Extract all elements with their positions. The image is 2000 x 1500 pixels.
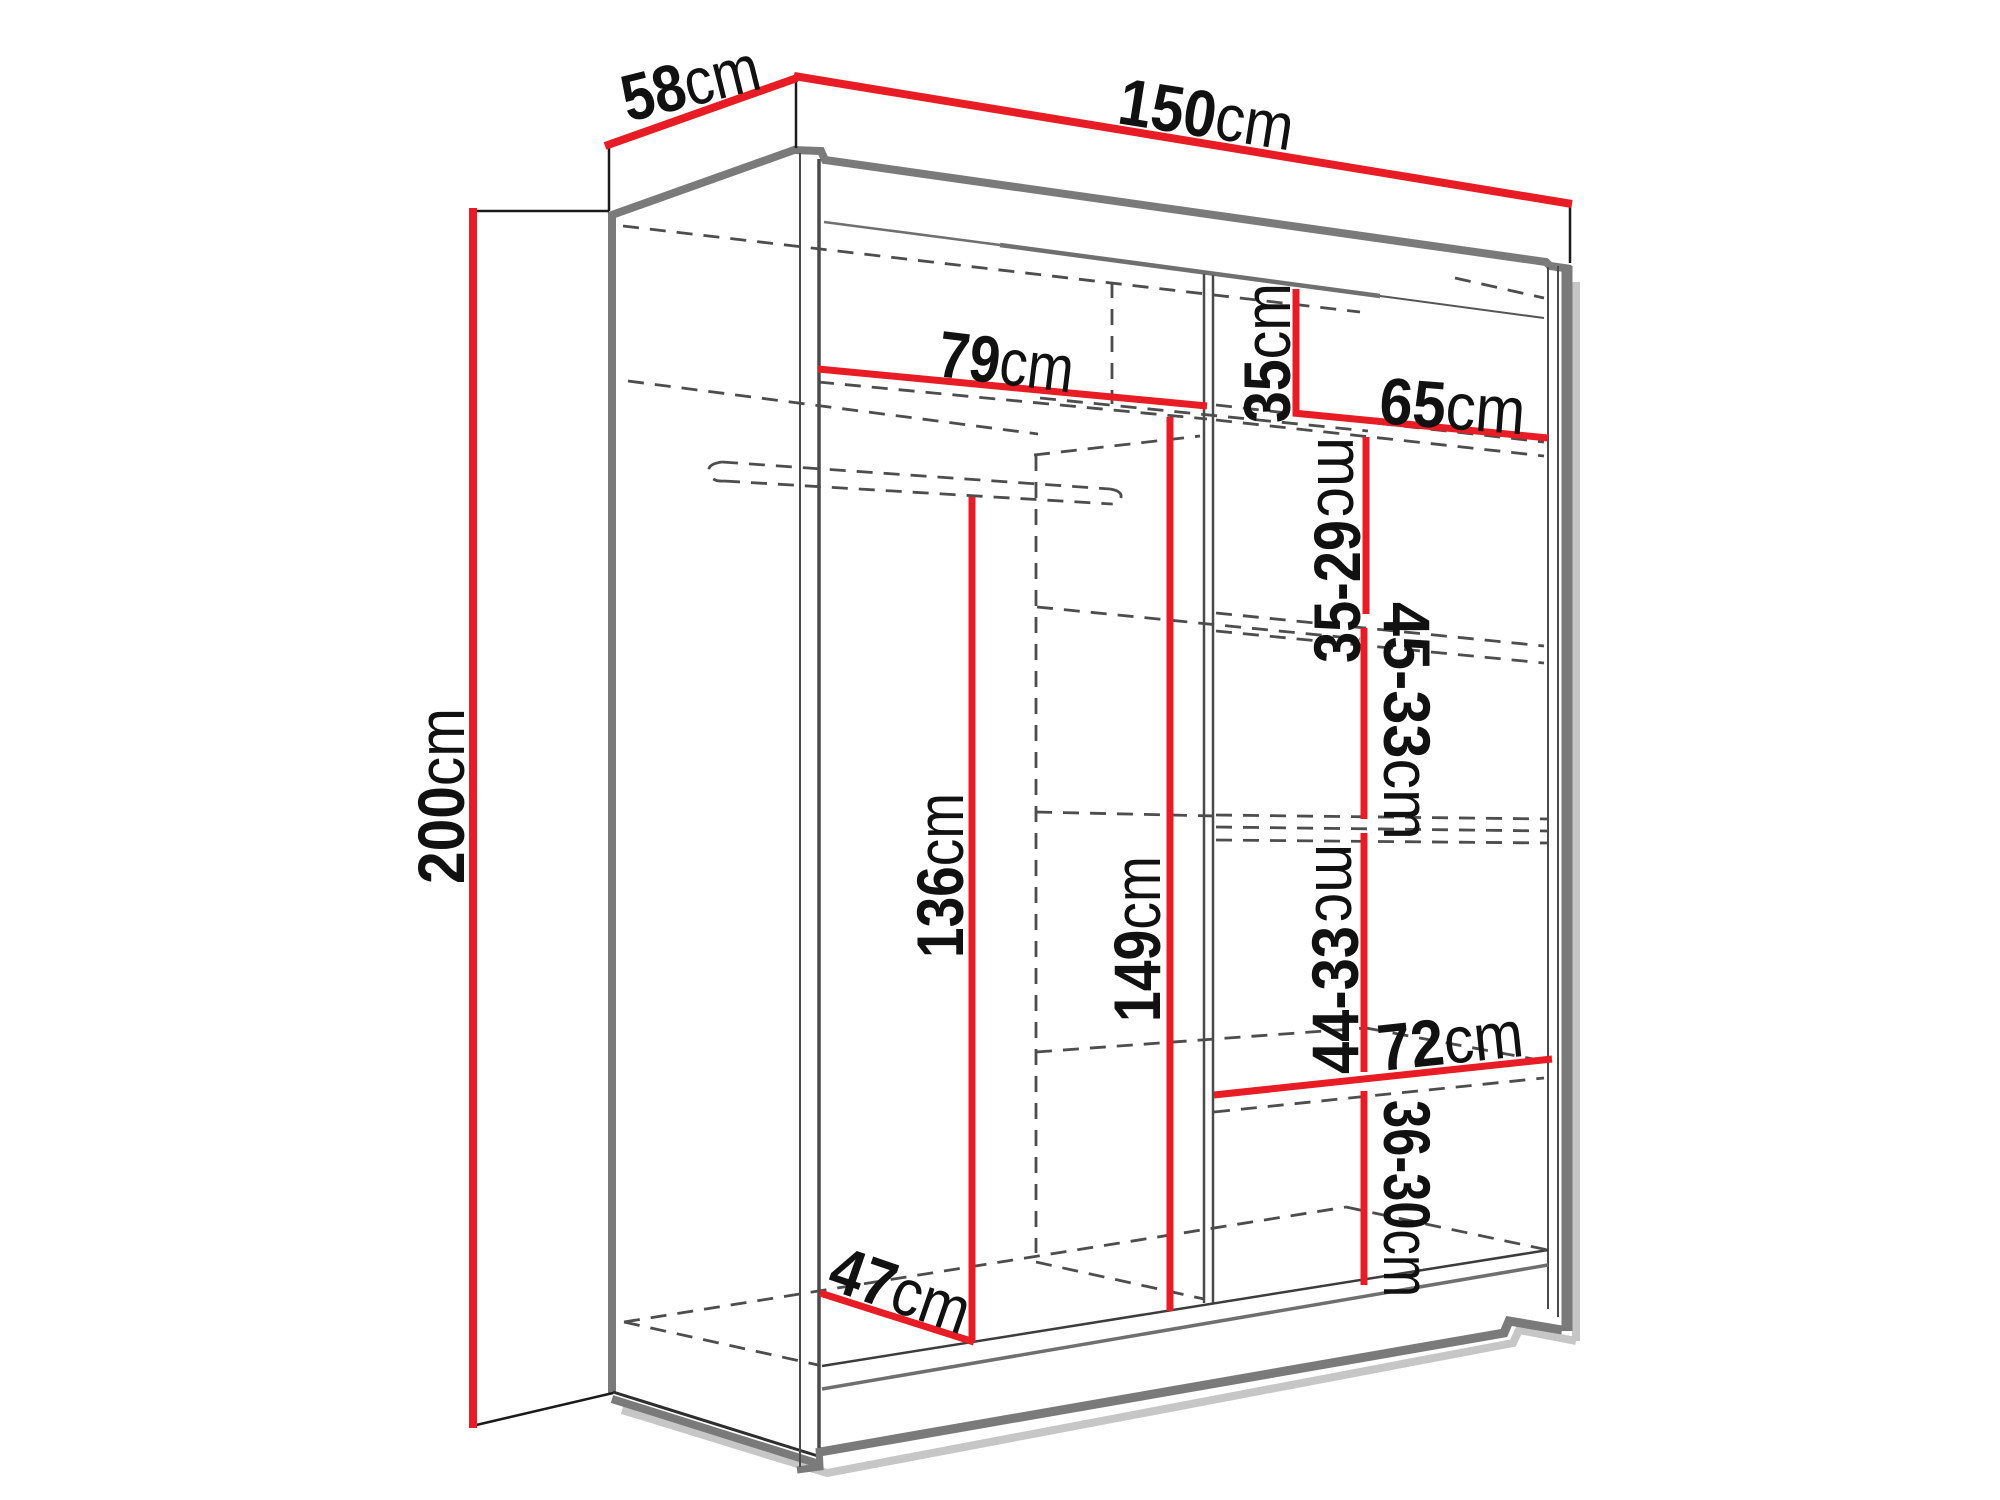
- svg-text:149cm: 149cm: [1100, 856, 1174, 1022]
- svg-text:mc: mc: [1304, 437, 1378, 517]
- svg-text:136cm: 136cm: [903, 793, 977, 958]
- svg-text:35-29: 35-29: [1300, 520, 1374, 663]
- svg-text:44-33: 44-33: [1298, 926, 1372, 1074]
- svg-text:65cm: 65cm: [1377, 363, 1528, 448]
- svg-text:35cm: 35cm: [1230, 283, 1304, 423]
- svg-text:36-30cm: 36-30cm: [1370, 1100, 1444, 1297]
- svg-text:72cm: 72cm: [1374, 996, 1527, 1085]
- svg-text:mc: mc: [1302, 844, 1376, 922]
- svg-text:45-33cm: 45-33cm: [1370, 602, 1444, 840]
- svg-text:200cm: 200cm: [404, 708, 478, 884]
